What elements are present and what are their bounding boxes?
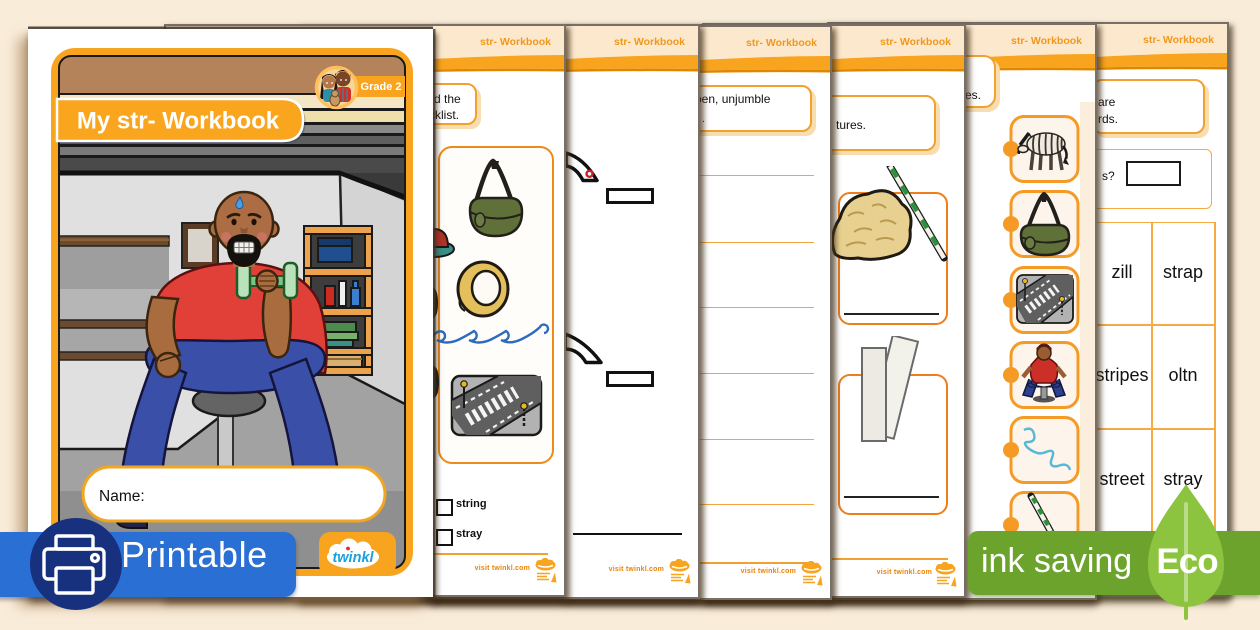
svg-text:My str- Workbook: My str- Workbook [77,108,280,135]
svg-text:Name:: Name: [99,488,145,505]
svg-text:twinkl: twinkl [332,550,374,566]
svg-text:Grade 2: Grade 2 [361,81,402,93]
